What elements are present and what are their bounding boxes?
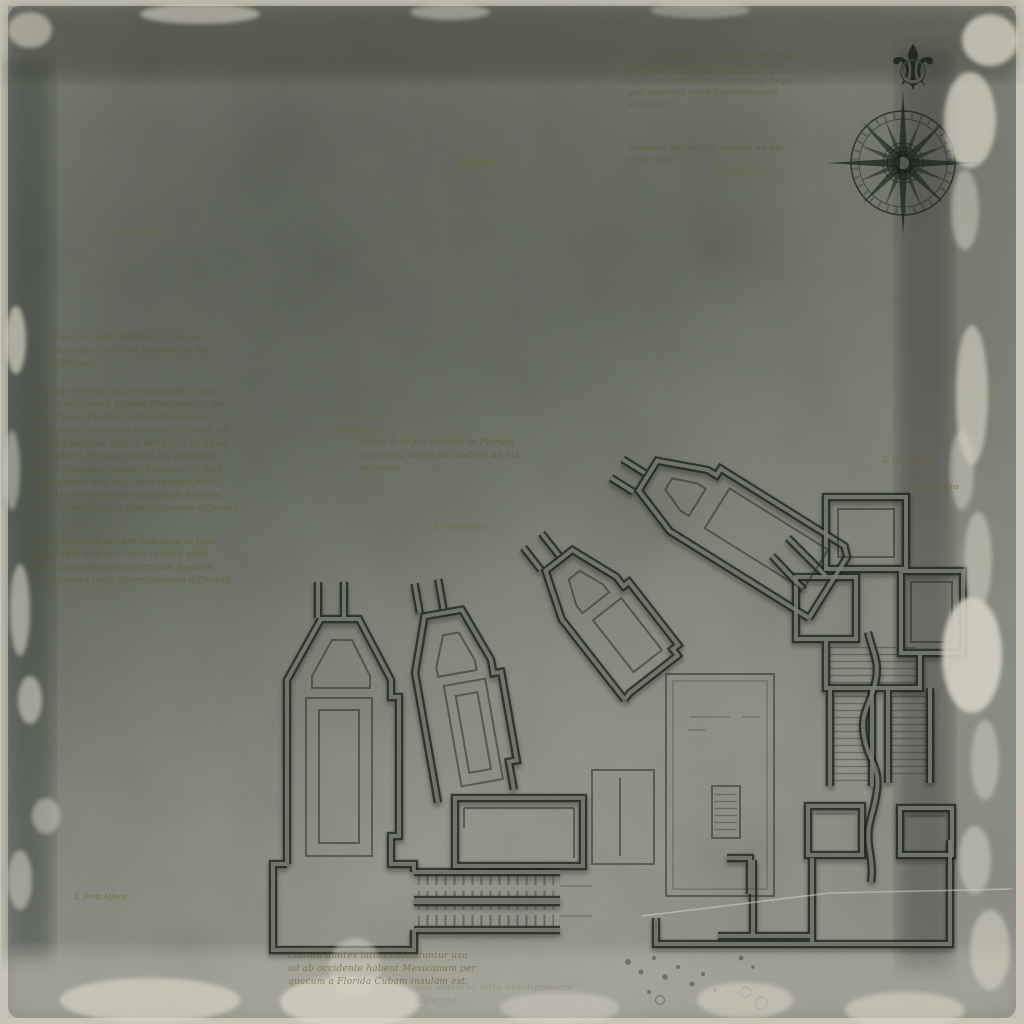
parchment-map: ⚜ L Aqua plurimum aciem habuisse in ipso… [0, 0, 1024, 1024]
place-label-minor: 3. Fora Alfons [716, 167, 769, 175]
note-left-heading: Regis & regni habitae in Florida provinc… [50, 332, 222, 371]
note-bottom-faint: qua universa infra descriptionem differu… [415, 982, 610, 1008]
place-label-minor: 3. Fora Alfons [74, 36, 127, 44]
note-left-small: Aqua plurimum acuum habuisse in ipso top… [28, 536, 266, 588]
compass-monogram: L [883, 144, 924, 185]
place-label-minor: 3. Fora Alfons [108, 228, 161, 236]
place-label-minor: 3. Fora Alfons [882, 456, 935, 464]
place-label-minor: 3. Fora Alfons [906, 483, 959, 491]
place-label-minor: 3. Fora Alfons [74, 893, 127, 901]
note-mid: Regis & regni habitae in Florida provinc… [360, 437, 548, 476]
place-label-minor: 3. Fora Alfons [326, 427, 379, 435]
fleur-de-lis-icon: ⚜ [878, 28, 948, 108]
note-left-main: Florida limites latius extenduntur usa a… [36, 386, 264, 516]
note-top: Aqua plurimum aciem habuisse in ipso top… [628, 50, 806, 112]
place-label-region: Apalatci [458, 158, 497, 168]
note-top-sub: promunt qua ad his madere ad his differu… [628, 142, 798, 167]
place-label-minor: 3. Fora Alfons [433, 523, 486, 531]
